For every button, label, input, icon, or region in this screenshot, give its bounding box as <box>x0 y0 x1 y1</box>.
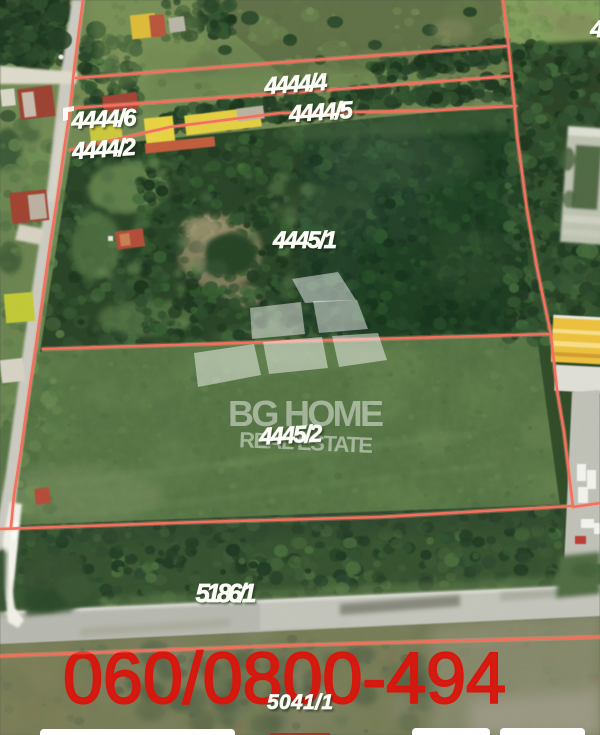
svg-text:4444/4: 4444/4 <box>263 69 329 100</box>
svg-text:4444/6: 4444/6 <box>70 104 138 134</box>
svg-text:4445/1: 4445/1 <box>272 227 337 254</box>
svg-text:5041/1: 5041/1 <box>267 691 333 714</box>
svg-text:4444/2: 4444/2 <box>70 134 137 166</box>
svg-text:4444/5: 4444/5 <box>287 97 354 129</box>
svg-text:4: 4 <box>589 16 600 43</box>
svg-text:4445/2: 4445/2 <box>258 420 324 450</box>
svg-text:5186/1: 5186/1 <box>196 578 257 608</box>
